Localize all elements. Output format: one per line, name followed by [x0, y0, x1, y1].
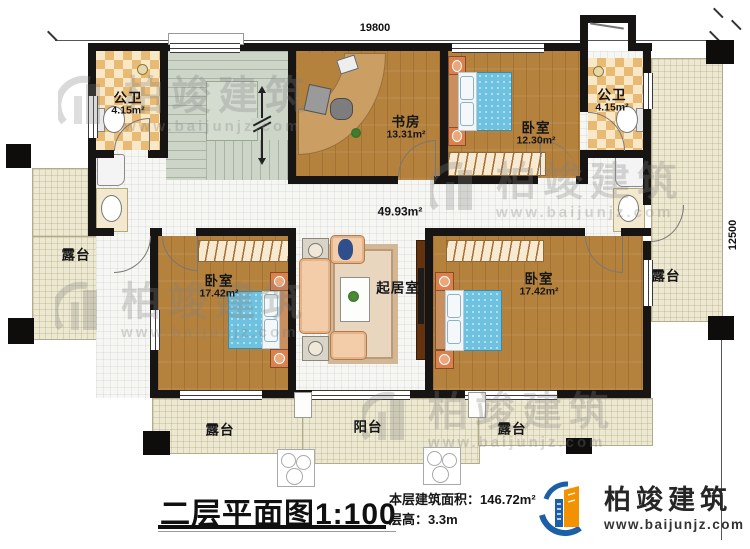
floor-height-line: 层高：3.3m: [389, 510, 536, 530]
room-label-bedroom-right: 卧室17.42m²: [519, 272, 558, 299]
wall-post: [468, 392, 486, 418]
room-label-bath-left: 公卫4.15m²: [111, 91, 144, 118]
plan-info: 本层建筑面积：146.72m² 层高：3.3m: [389, 490, 536, 530]
window: [180, 390, 262, 400]
window: [150, 310, 160, 350]
plant-pot-icon: [286, 468, 303, 485]
pillow: [447, 294, 461, 318]
nightstand: [270, 349, 289, 368]
wall-segment: [150, 390, 180, 398]
column: [6, 144, 31, 168]
arrow-head-icon: [258, 158, 266, 165]
wall-segment: [288, 176, 398, 184]
column: [708, 316, 734, 340]
column: [706, 40, 734, 64]
wall-segment: [580, 150, 651, 158]
floor-area-line: 本层建筑面积：146.72m²: [389, 490, 536, 510]
arrow-head-icon: [258, 86, 266, 93]
terrace-left-upper: [32, 168, 91, 239]
plant-pot-icon: [432, 466, 449, 483]
pillow: [460, 76, 474, 100]
washing-machine-icon: [615, 154, 644, 187]
wardrobe: [448, 152, 546, 176]
planter-box: [423, 447, 461, 485]
washing-machine-icon: [97, 154, 125, 186]
column: [566, 438, 592, 454]
wall-segment: [440, 43, 448, 184]
title-underline: [158, 525, 386, 529]
wall-segment: [643, 241, 651, 260]
plant-icon: [351, 128, 361, 138]
room-label-terrace-right: 露台: [652, 268, 681, 283]
column: [143, 431, 170, 455]
stair-landing: [206, 81, 258, 141]
wall-segment: [160, 43, 168, 158]
pillow: [264, 319, 278, 342]
lamp-icon: [308, 341, 323, 356]
wall-segment: [196, 228, 296, 236]
dimension-tick: [47, 31, 57, 41]
wall-segment: [88, 43, 96, 96]
brand-name: 柏竣建筑: [604, 487, 745, 514]
room-label-bedroom-left: 卧室17.42m²: [199, 274, 238, 301]
nightstand: [435, 272, 454, 291]
pillow: [264, 294, 278, 317]
pillow: [447, 320, 461, 344]
wall-segment: [576, 176, 588, 184]
sink-icon: [101, 195, 122, 222]
chaise: [330, 331, 367, 360]
room-label-terrace-bottom-left: 露台: [206, 422, 235, 437]
wall-segment: [643, 43, 651, 73]
plant-pot-icon: [442, 453, 457, 468]
room-label-balcony: 阳台: [354, 419, 383, 434]
wall-segment: [88, 150, 114, 158]
wall-segment: [425, 390, 465, 398]
dimension-right-value: 12500: [727, 220, 739, 251]
wall-segment: [88, 228, 114, 236]
wall-segment: [643, 306, 651, 398]
wall-segment: [288, 43, 296, 184]
stair-treads: [166, 51, 288, 81]
window: [170, 43, 240, 53]
wall-segment: [150, 228, 158, 310]
plant-icon: [348, 291, 359, 302]
brand-logo-icon: [538, 481, 596, 537]
tv-icon: [418, 268, 424, 324]
wall-segment: [643, 109, 651, 205]
wall-segment: [425, 228, 585, 236]
shower-icon: [593, 66, 604, 77]
brand-website: www.baijunjz.com: [604, 517, 745, 532]
wall-segment: [288, 228, 296, 398]
sink-icon: [618, 195, 639, 222]
lamp-icon: [308, 243, 323, 258]
plant-pot-icon: [281, 453, 296, 468]
window: [312, 390, 410, 400]
plant-pot-icon: [296, 455, 311, 470]
wall-segment: [434, 176, 538, 184]
room-label-terrace-bottom-right: 露台: [498, 421, 527, 436]
room-label-terrace-left: 露台: [62, 247, 91, 262]
pillow: [460, 102, 474, 126]
window: [88, 96, 98, 138]
dimension-line-top: [55, 40, 717, 41]
room-label-living: 起居室: [376, 280, 420, 295]
wall-segment: [425, 228, 433, 398]
brand-logo: 柏竣建筑 www.baijunjz.com: [538, 481, 745, 537]
title-underline-thin: [158, 531, 396, 532]
wall-segment: [557, 390, 651, 398]
nightstand: [270, 272, 289, 291]
plant-pot-icon: [427, 451, 442, 466]
wall-segment: [621, 228, 651, 236]
wall-post: [294, 392, 312, 418]
dimension-top-value: 19800: [360, 22, 391, 34]
room-label-study: 书房13.31m²: [386, 115, 425, 142]
window: [452, 43, 544, 53]
chair-icon: [330, 98, 353, 120]
dimension-tick: [731, 20, 741, 30]
hall-area-label: 49.93m²: [378, 205, 423, 218]
wall-segment: [580, 43, 588, 112]
window: [643, 73, 653, 109]
sofa: [299, 258, 331, 334]
wardrobe: [198, 240, 290, 262]
wall-segment: [148, 150, 168, 158]
shower-icon: [137, 64, 148, 75]
column: [8, 318, 34, 344]
person-figure: [338, 239, 353, 260]
floor-plan-canvas: 19800 12500: [0, 0, 750, 549]
stair-treads: [206, 140, 288, 180]
room-label-bedroom-top: 卧室12.30m²: [516, 121, 555, 148]
planter-box: [277, 449, 315, 487]
dimension-tick: [713, 8, 723, 18]
wardrobe: [446, 240, 544, 262]
room-label-bath-right: 公卫4.15m²: [595, 88, 628, 115]
wall-segment: [628, 15, 636, 51]
nightstand: [435, 350, 454, 369]
door-leaf: [590, 22, 624, 29]
